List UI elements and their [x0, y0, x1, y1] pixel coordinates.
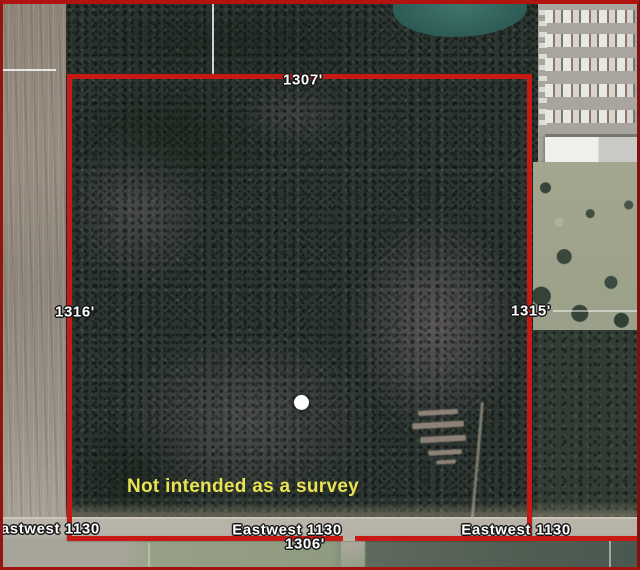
trailer-row — [545, 110, 635, 123]
parcel-boundary — [67, 74, 532, 541]
parked-vehicles-column — [539, 10, 547, 125]
boundary-length-right: 1315' — [511, 303, 551, 320]
forest-east — [533, 330, 637, 518]
road-label-center: Eastwest 1130 — [232, 522, 342, 539]
section-line — [609, 540, 611, 567]
trailer-row — [545, 10, 635, 23]
section-line — [212, 4, 214, 76]
boundary-gap-driveway — [343, 535, 355, 541]
aerial-map: 1307' 1316' 1315' 1306' Eastwest 1130 Ea… — [0, 0, 640, 570]
section-line — [3, 69, 56, 71]
warehouse-building — [545, 134, 637, 163]
driveway — [341, 539, 365, 567]
road-label-west: Eastwest 1130 — [0, 521, 100, 538]
boundary-length-left: 1316' — [55, 304, 95, 321]
trailer-row — [545, 34, 635, 47]
white-dot-marker — [294, 395, 309, 410]
section-line — [553, 310, 637, 312]
dense-trees-patch — [66, 4, 396, 79]
farm-field-west — [3, 4, 66, 520]
boundary-length-top: 1307' — [283, 72, 323, 89]
trailer-row — [545, 84, 635, 97]
trailer-row — [545, 58, 635, 71]
section-line — [148, 543, 150, 567]
road-label-east: Eastwest 1130 — [461, 522, 571, 539]
survey-disclaimer: Not intended as a survey — [127, 476, 359, 498]
